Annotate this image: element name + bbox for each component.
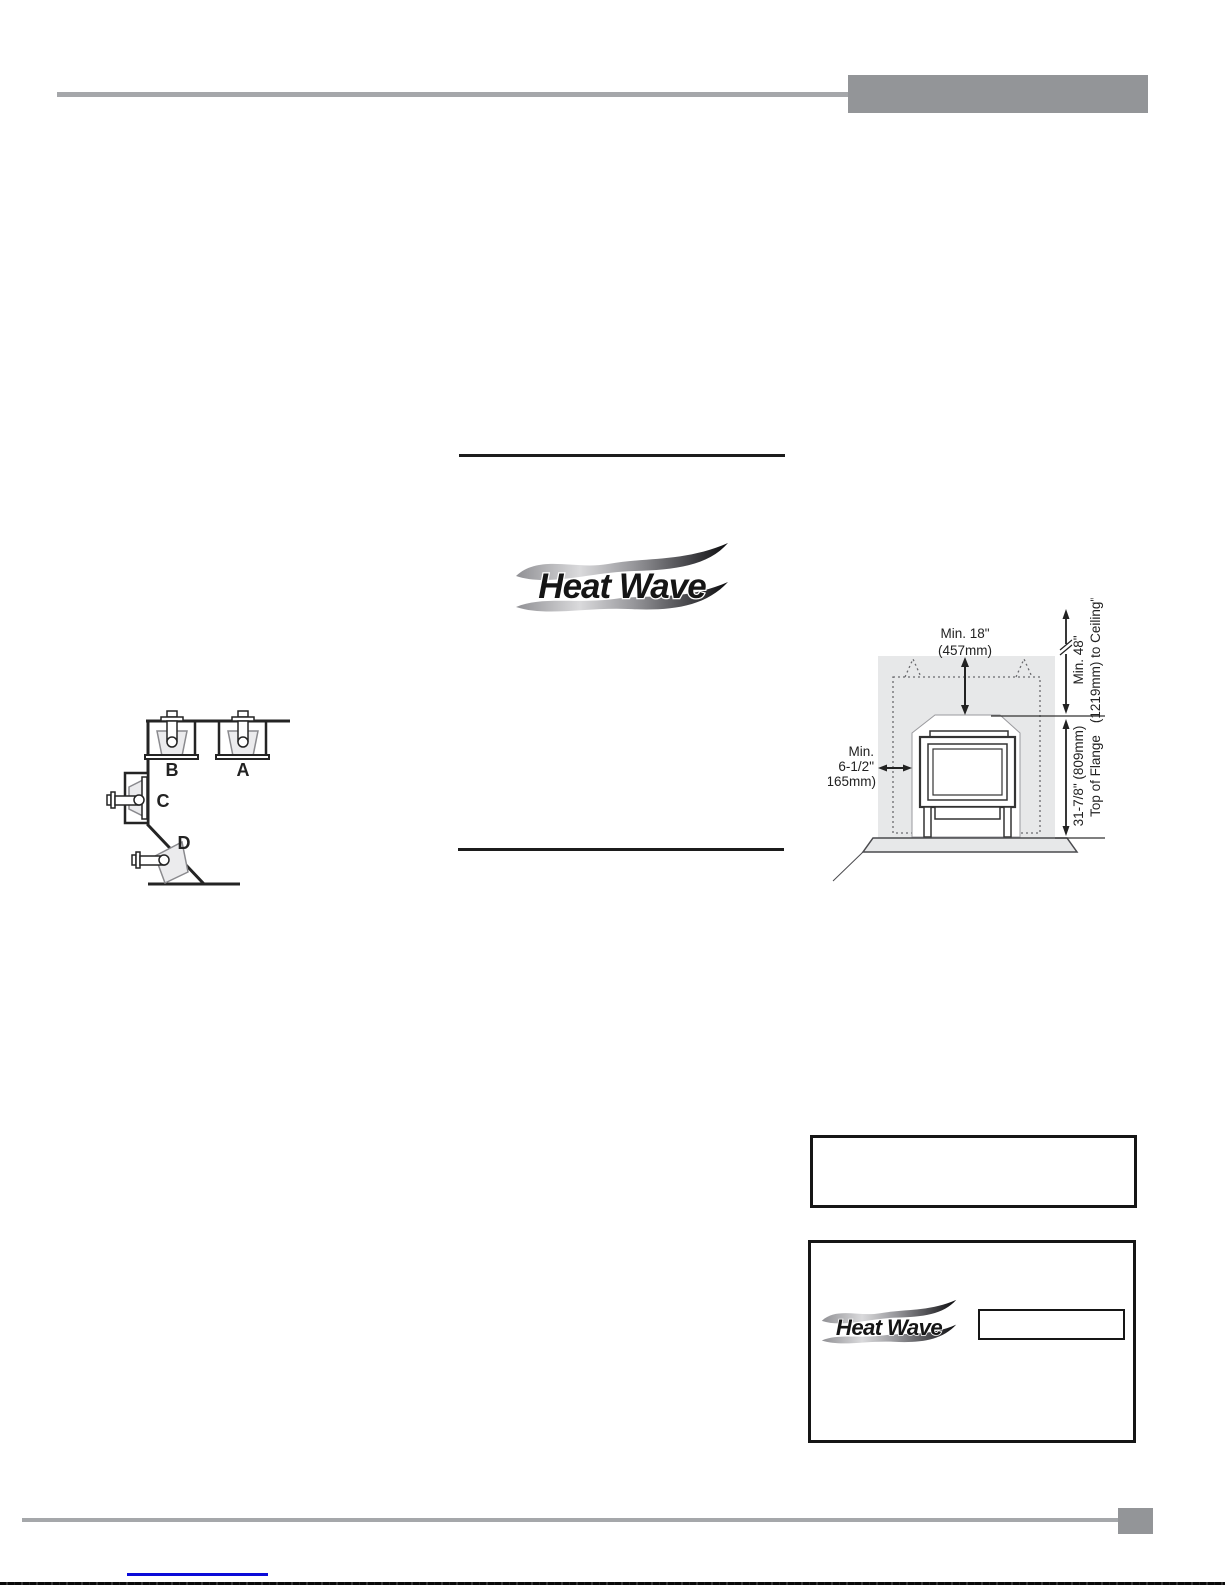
hearth-pad [863, 838, 1077, 852]
side-clearance-label-2: 6-1/2" [838, 759, 874, 774]
header-tab-block [848, 75, 1148, 113]
logo-wordmark: Heat Wave [836, 1315, 942, 1340]
flange-height-label-1: 31-7/8" (809mm) [1071, 726, 1086, 827]
floor-edge-line [833, 852, 863, 881]
ceiling-clearance-label-1: Min. 48" [1071, 635, 1086, 684]
logo-wordmark: Heat Wave [538, 567, 706, 606]
footer-rule [22, 1518, 1118, 1522]
flange-dimension-line [1063, 719, 1070, 836]
side-clearance-label-1: Min. [848, 744, 874, 759]
top-clearance-label-2: (457mm) [938, 643, 992, 658]
mount-label-d: D [178, 833, 191, 853]
mount-label-c: C [157, 791, 170, 811]
section-divider-bottom [458, 848, 784, 851]
section-divider-top [459, 454, 785, 457]
top-clearance-label-1: Min. 18" [940, 626, 989, 641]
mount-label-b: B [166, 760, 179, 780]
footer-link-underline[interactable] [127, 1573, 268, 1576]
certification-box [810, 1135, 1137, 1208]
mount-label-a: A [237, 760, 250, 780]
manual-page: Heat Wave [0, 0, 1225, 1585]
ceiling-clearance-label-2: (1219mm) to Ceiling" [1088, 598, 1103, 723]
fixture-b [145, 711, 198, 759]
label-box: Heat Wave [808, 1240, 1136, 1443]
footer-page-block [1118, 1508, 1153, 1534]
heat-wave-logo-small: Heat Wave [815, 1298, 963, 1350]
side-clearance-label-3: (165mm) [828, 774, 876, 789]
fixture-c [107, 773, 148, 823]
header-rule [57, 92, 848, 97]
serial-field-box [978, 1309, 1125, 1340]
mounting-positions-diagram: B A C D [105, 695, 305, 895]
flange-height-label-2: Top of Flange [1088, 735, 1103, 817]
clearance-diagram: Min. 18" (457mm) Min. 6-1/2" (165mm) Min… [828, 598, 1118, 888]
heat-wave-logo: Heat Wave [512, 540, 732, 622]
fixture-a [216, 711, 269, 759]
